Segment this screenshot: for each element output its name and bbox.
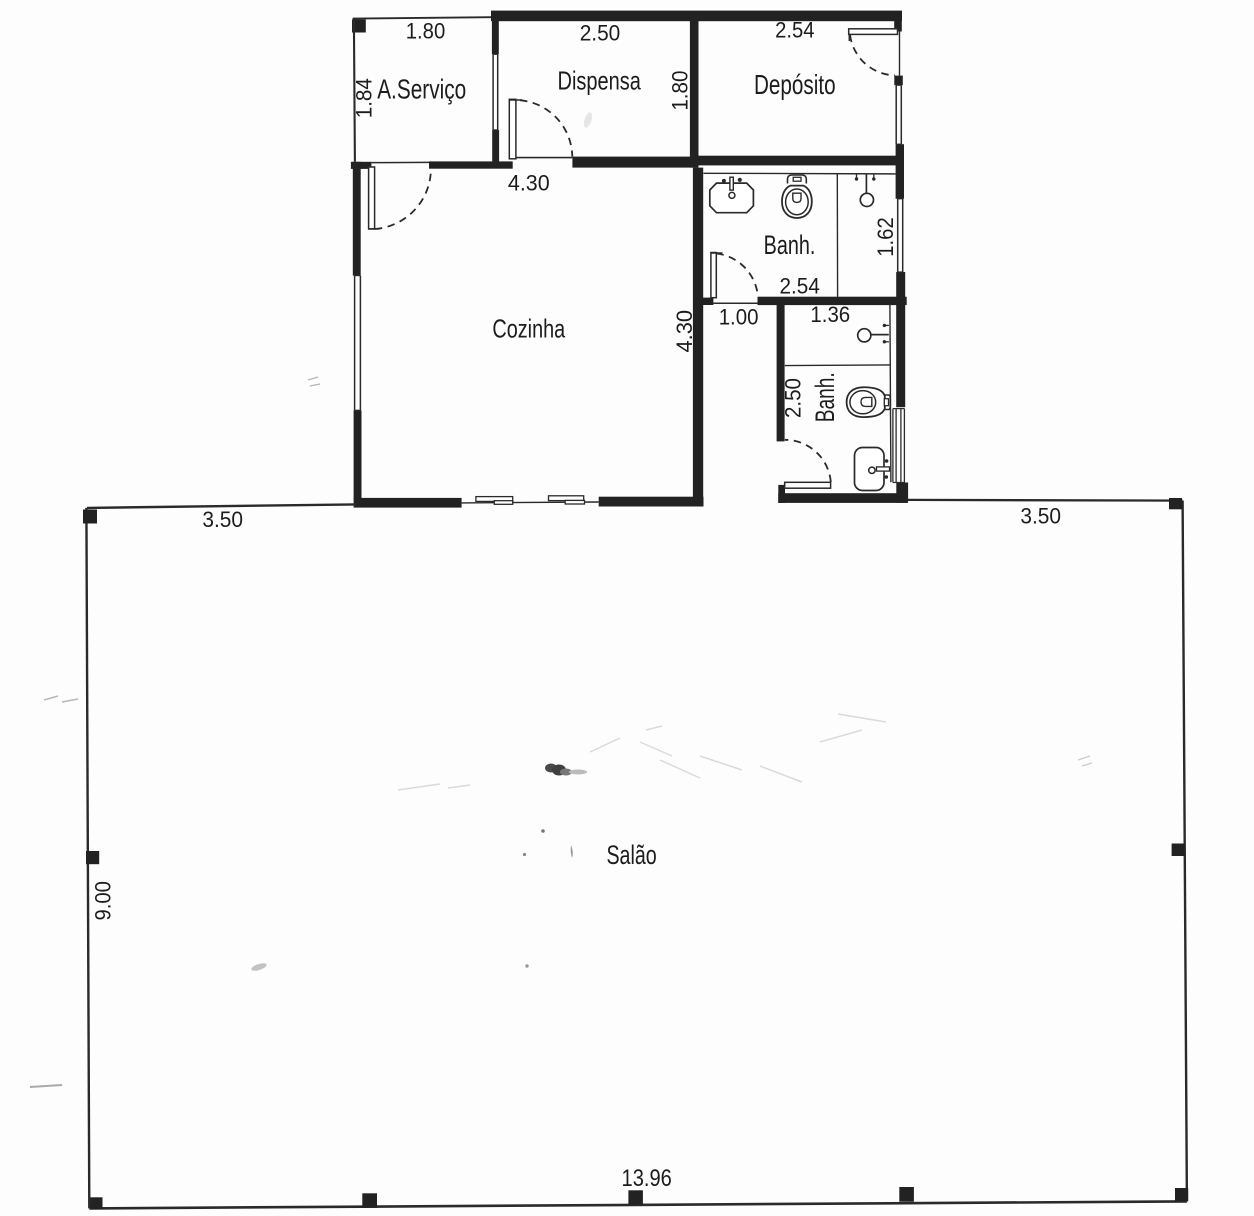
svg-text:Banh.: Banh.: [810, 372, 840, 422]
svg-text:2.54: 2.54: [775, 17, 814, 42]
svg-text:1.80: 1.80: [668, 71, 693, 111]
svg-text:2.50: 2.50: [780, 378, 805, 418]
svg-text:1.80: 1.80: [406, 19, 446, 44]
svg-text:4.30: 4.30: [508, 171, 550, 196]
svg-text:A.Serviço: A.Serviço: [377, 73, 466, 104]
svg-text:1.36: 1.36: [810, 302, 850, 327]
svg-text:Cozinha: Cozinha: [492, 313, 565, 343]
svg-text:3.50: 3.50: [202, 507, 243, 532]
svg-text:1.62: 1.62: [873, 217, 898, 257]
svg-text:Banh.: Banh.: [764, 230, 816, 260]
svg-text:2.50: 2.50: [580, 21, 621, 46]
svg-text:Depósito: Depósito: [754, 69, 836, 100]
svg-text:1.84: 1.84: [352, 78, 377, 118]
svg-text:1.00: 1.00: [719, 305, 759, 330]
svg-text:Dispensa: Dispensa: [558, 65, 642, 95]
svg-text:9.00: 9.00: [90, 881, 115, 920]
svg-text:Salão: Salão: [606, 840, 656, 870]
svg-text:3.50: 3.50: [1020, 504, 1061, 529]
svg-text:2.54: 2.54: [780, 274, 820, 299]
svg-text:4.30: 4.30: [672, 310, 697, 353]
svg-text:13.96: 13.96: [622, 1165, 672, 1192]
